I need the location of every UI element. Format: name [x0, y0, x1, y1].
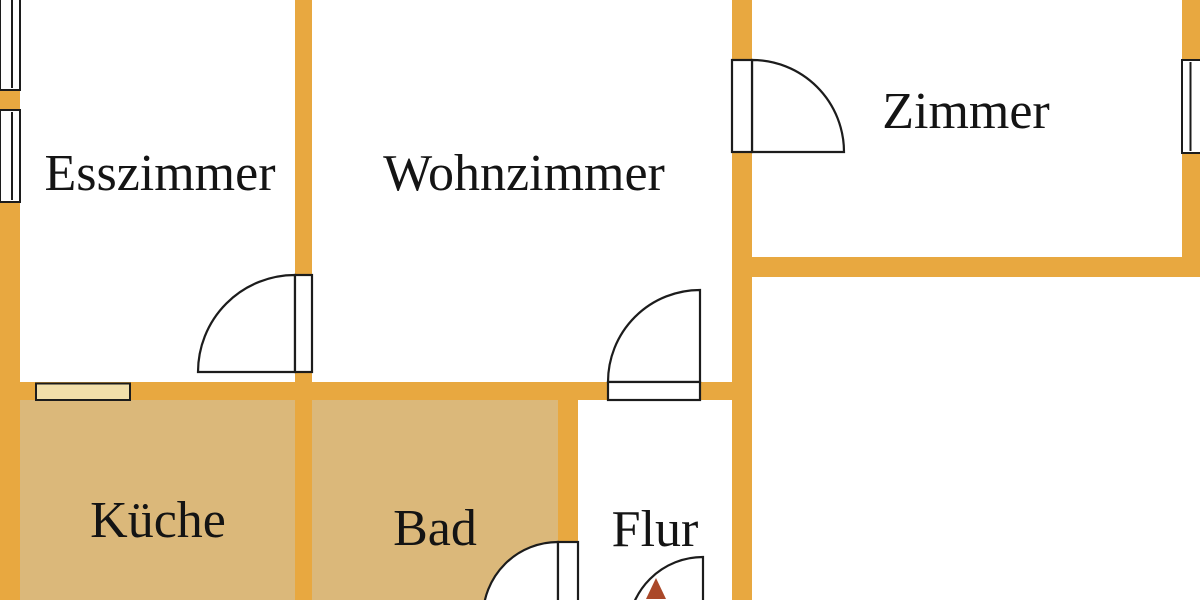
- window-esszimmer-lower: [0, 110, 20, 202]
- label-esszimmer: Esszimmer: [44, 145, 275, 202]
- door-wohnzimmer-flur-swing: [608, 290, 700, 382]
- door-esszimmer-opening: [295, 275, 312, 372]
- label-flur: Flur: [612, 501, 699, 558]
- label-kueche: Küche: [90, 492, 226, 549]
- label-bad: Bad: [393, 500, 477, 557]
- door-esszimmer-swing: [198, 275, 295, 372]
- window-kueche-hatch: [36, 384, 130, 401]
- door-zimmer-swing: [752, 60, 844, 152]
- window-esszimmer-upper: [0, 0, 20, 90]
- door-zimmer-opening: [732, 60, 752, 152]
- door-bad-opening: [558, 542, 578, 600]
- door-entrance-swing: [628, 557, 703, 600]
- floor-plan-canvas: Esszimmer Wohnzimmer Zimmer Küche Bad Fl…: [0, 0, 1200, 600]
- label-wohnzimmer: Wohnzimmer: [383, 145, 665, 202]
- wall-kueche-bad: [295, 400, 312, 600]
- wall-zimmer-bottom: [752, 257, 1182, 277]
- door-wohnzimmer-flur-opening: [608, 382, 700, 400]
- label-zimmer: Zimmer: [882, 83, 1050, 140]
